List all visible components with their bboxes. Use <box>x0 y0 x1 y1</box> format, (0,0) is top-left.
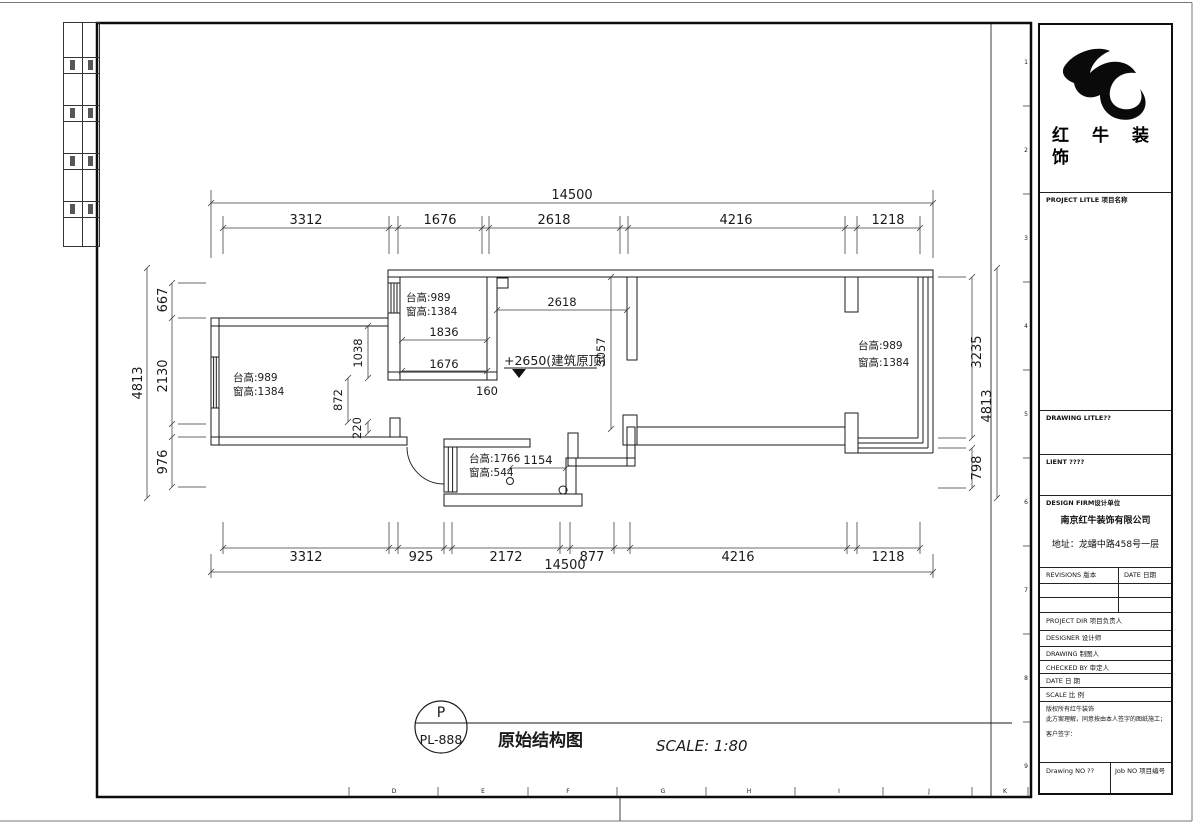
col-letter: H <box>747 788 752 795</box>
col-letter: J <box>927 788 930 795</box>
dim-top-seg: 1218 <box>871 213 904 228</box>
date-label: DATE 日 期 <box>1046 677 1080 685</box>
revision-cell-mark <box>70 156 75 166</box>
tag-number: PL-888 <box>420 732 463 747</box>
dim-bottom-seg: 2172 <box>489 550 522 565</box>
revision-strip <box>63 22 100 247</box>
dim-1038: 1038 <box>351 338 365 367</box>
company-logo <box>1048 43 1168 128</box>
scale-label: SCALE 比 例 <box>1046 691 1084 699</box>
revisions-date-label: DATE 日期 <box>1124 571 1156 579</box>
dim-top-overall: 14500 <box>551 188 592 203</box>
revisions-table-divider <box>1118 567 1119 612</box>
drawing-name: 原始结构图 <box>498 730 583 751</box>
bull-logo-icon <box>1063 49 1146 120</box>
row-number: 3 <box>1024 235 1028 242</box>
col-letter: K <box>1003 788 1008 795</box>
revision-cell-mark <box>70 204 75 214</box>
plan-canvas: 1 2 3 4 5 6 7 8 9 D E F G H I J K <box>0 0 1200 824</box>
drawing-no-label: Drawing NO ?? <box>1046 767 1094 775</box>
drawing-by-label: DRAWING 制图人 <box>1046 650 1099 658</box>
dim-bottom-overall: 14500 <box>544 558 585 573</box>
row-number: 9 <box>1024 763 1028 770</box>
dim-left-seg: 976 <box>156 450 171 475</box>
checked-by-label: CHECKED BY 审定人 <box>1046 664 1109 672</box>
dim-1154: 1154 <box>523 453 552 467</box>
room-label-bath-2: 窗高:544 <box>469 466 514 479</box>
scale-text: SCALE: 1:80 <box>656 737 748 755</box>
designer-label: DESIGNER 设计师 <box>1046 634 1101 642</box>
dim-top-seg: 4216 <box>719 213 752 228</box>
drawing-frame <box>97 23 1031 797</box>
room-label-bath-1: 台高:1766 <box>469 452 521 465</box>
drawing-sheet: 1 2 3 4 5 6 7 8 9 D E F G H I J K <box>0 0 1200 824</box>
dim-220: 220 <box>350 417 364 439</box>
ceiling-note: +2650(建筑原顶) <box>504 353 606 378</box>
dim-right-overall: 4813 <box>980 389 995 422</box>
row-number: 6 <box>1024 499 1028 506</box>
interior-dimension-text: 1836 1676 160 2618 3057 1038 872 220 115… <box>331 295 608 467</box>
dim-left-seg: 667 <box>156 288 171 313</box>
dim-bottom-seg: 1218 <box>871 550 904 565</box>
dim-160: 160 <box>476 384 498 398</box>
revision-cell-mark <box>88 60 93 70</box>
room-label-middle-2: 窗高:1384 <box>406 305 458 318</box>
col-ruler-ticks <box>349 787 1028 797</box>
title-block: 红牛装饰 PROJECT LITLE 项目名称 DRAWING LITLE?? … <box>1038 23 1173 795</box>
copyright-note-2: 此方案理解，同意按由本人签字的图纸施工； <box>1046 716 1166 724</box>
company-name: 红牛装饰 <box>1052 125 1174 169</box>
room-labels: 台高:989 窗高:1384 台高:989 窗高:1384 台高:989 窗高:… <box>233 291 910 479</box>
dim-bottom-seg: 4216 <box>721 550 754 565</box>
col-letter: E <box>481 788 485 795</box>
dim-3057: 3057 <box>594 337 608 366</box>
dim-top-seg: 2618 <box>537 213 570 228</box>
row-number: 7 <box>1024 587 1028 594</box>
revision-cell-mark <box>88 156 93 166</box>
row-number: 1 <box>1024 59 1028 66</box>
revision-cell-mark <box>88 204 93 214</box>
room-label-left-1: 台高:989 <box>233 371 278 384</box>
col-ruler-letters: D E F G H I J K <box>392 788 1008 795</box>
drawing-title-label: DRAWING LITLE?? <box>1046 414 1111 422</box>
revision-cell-mark <box>88 108 93 118</box>
drawing-tag: P PL-888 原始结构图 SCALE: 1:80 <box>415 701 1012 755</box>
dim-top-seg: 3312 <box>289 213 322 228</box>
dimension-lines <box>144 190 1000 578</box>
project-dir-label: PROJECT DIR 项目负责人 <box>1046 617 1122 625</box>
room-label-middle-1: 台高:989 <box>406 291 451 304</box>
client-label: LIENT ???? <box>1046 458 1084 466</box>
col-letter: I <box>838 788 840 795</box>
dim-2618: 2618 <box>547 295 576 309</box>
door-swing-arc <box>407 447 444 484</box>
dim-1676: 1676 <box>429 357 458 371</box>
row-number: 2 <box>1024 147 1028 154</box>
job-no-label: Job NO 项目编号 <box>1115 767 1165 775</box>
row-number: 4 <box>1024 323 1028 330</box>
row-number: 5 <box>1024 411 1028 418</box>
drawing-no-divider <box>1110 762 1111 793</box>
col-letter: D <box>392 788 397 795</box>
revision-cell-mark <box>70 60 75 70</box>
tag-letter: P <box>437 705 445 721</box>
dim-left-overall: 4813 <box>131 366 146 399</box>
dim-left-seg: 2130 <box>156 359 171 392</box>
revision-cell-mark <box>70 108 75 118</box>
room-label-left-2: 窗高:1384 <box>233 385 285 398</box>
row-ruler-numbers: 1 2 3 4 5 6 7 8 9 <box>1024 59 1028 770</box>
dim-right-seg: 798 <box>970 456 985 481</box>
dim-bottom-seg: 3312 <box>289 550 322 565</box>
col-letter: G <box>661 788 666 795</box>
dim-bottom-seg: 925 <box>409 550 434 565</box>
copyright-note-3: 客户签字： <box>1046 731 1076 739</box>
ceiling-note-text: +2650(建筑原顶) <box>504 353 606 368</box>
elevation-marker-icon <box>512 369 526 378</box>
dim-872: 872 <box>331 389 345 411</box>
revisions-label: REVISIONS 版本 <box>1046 571 1096 579</box>
page-edge-lines <box>0 3 1192 822</box>
design-firm-label: DESIGN FIRM设计单位 <box>1046 499 1120 507</box>
firm-name: 南京红牛装饰有限公司 <box>1040 513 1171 526</box>
firm-address: 地址：龙蟠中路458号一层 <box>1040 537 1171 550</box>
copyright-note-1: 版权所有红牛装饰 <box>1046 706 1094 714</box>
row-number: 8 <box>1024 675 1028 682</box>
room-label-right-2: 窗高:1384 <box>858 356 910 369</box>
dim-top-seg: 1676 <box>423 213 456 228</box>
col-letter: F <box>566 788 570 795</box>
room-label-right-1: 台高:989 <box>858 339 903 352</box>
dim-right-seg: 3235 <box>970 335 985 368</box>
project-title-label: PROJECT LITLE 项目名称 <box>1046 196 1127 204</box>
dim-1836: 1836 <box>429 325 458 339</box>
